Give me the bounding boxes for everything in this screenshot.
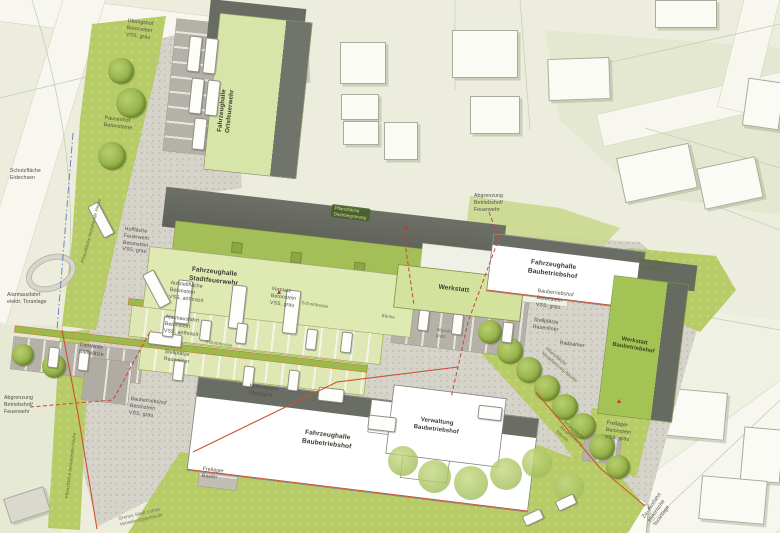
roof-vent: [231, 242, 243, 254]
neighbor-building: [698, 475, 768, 525]
label-fahrzeughalle-baubetriebshof-sued: Fahrzeughalle Baubetriebshof: [301, 429, 352, 452]
label-werkstatt-baubetriebshof: Werkstatt Baubetriebshof: [607, 334, 661, 357]
roof-vent: [290, 251, 302, 263]
hydrant-marker: [404, 225, 408, 229]
neighbor-building: [340, 42, 386, 84]
label-abgrenzung-nord: Abgrenzung Betriebshof/ Feuerwehr: [474, 193, 503, 213]
neighbor-building: [452, 30, 518, 78]
site-plan: Fahrzeughalle Ortsfeuerwehr Fahrzeughall…: [0, 0, 780, 533]
neighbor-building: [547, 57, 610, 101]
tree: [478, 320, 502, 344]
tree: [606, 455, 630, 479]
tree: [12, 344, 34, 366]
neighbor-building: [470, 96, 520, 134]
tree-soft: [418, 460, 451, 493]
vehicle-van: [367, 414, 397, 432]
label-aufstellflaeche: Aufstellfläche Betonstein VSS, anthrazit: [169, 280, 206, 304]
label-abgrenzung-sued: Abgrenzung Betriebshof/ Feuerwehr: [4, 395, 33, 415]
tree-soft: [490, 458, 522, 490]
neighbor-building: [341, 94, 379, 120]
tree: [116, 88, 146, 118]
neighbor-building: [740, 426, 780, 483]
tree: [98, 142, 126, 170]
label-alarmausfahrt-tor: Alarmausfahrt elektr. Toranlage: [7, 292, 47, 306]
label-freilager-boxen: Freilager Boxen: [201, 466, 224, 482]
label-hofflaeche: Hoffläche Feuerwehr Betonstein VSS, grau: [122, 226, 151, 256]
label-vorplatz: Vorplatz Betonstein VSS, grau: [270, 286, 298, 309]
vehicle-van: [477, 405, 502, 422]
label-schutzflaeche: Schutzfläche Eidechsen: [10, 168, 41, 182]
label-alarmausfahrt-flaeche: Alarmausfahrt Betonstein VSS, anthrazit: [164, 314, 201, 338]
tree-soft: [454, 466, 488, 500]
neighbor-building: [384, 122, 418, 160]
neighbor-building: [655, 0, 717, 28]
tree-soft: [388, 446, 418, 476]
tree-soft: [522, 448, 552, 478]
neighbor-building: [343, 121, 379, 145]
label-werkstatt: Werkstatt: [438, 284, 470, 296]
hydrant-marker: [617, 399, 621, 403]
tree: [108, 58, 134, 84]
vehicle-van: [317, 387, 344, 404]
building-fahrzeughalle-ortsfeuerwehr: Fahrzeughalle Ortsfeuerwehr: [204, 14, 312, 179]
label-freilager-beton: Freilager Betonstein VSS, grau: [605, 420, 633, 443]
label-baubetriebshof-beton-sued: Baubetriebshof Betonstein VSS, grau: [129, 396, 167, 421]
label-waschplatz: Wasch- platz: [436, 327, 453, 341]
label-baubetriebshof-beton-ost: Baubetriebshof Betonstein VSS, grau: [536, 288, 574, 313]
label-verwaltung: Verwaltung Baubetriebshof: [413, 416, 460, 437]
label-fahrzeughalle-baubetriebshof-nord: Fahrzeughalle Baubetriebshof: [527, 258, 578, 281]
container-pads: [82, 358, 132, 405]
label-uebungshof: Übungshof Betonstein VSS, grau: [126, 18, 154, 41]
label-container: Container Stellplätze: [78, 342, 105, 358]
neighbor-building: [742, 78, 780, 131]
